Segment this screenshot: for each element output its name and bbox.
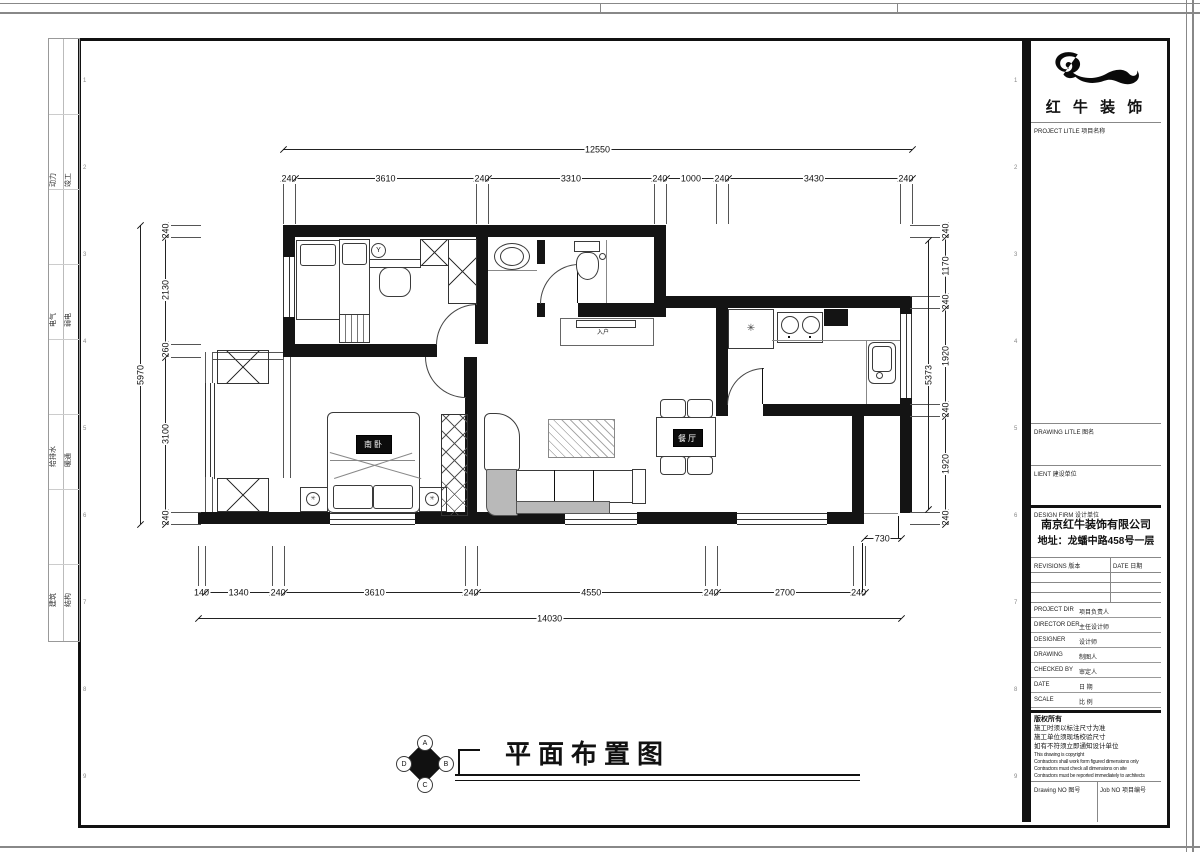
title-bracket-h: [458, 749, 480, 751]
dim-segment: 3310: [488, 178, 654, 179]
copyright-line-cn: 如有不符须立即通知设计单位: [1034, 742, 1119, 751]
bay-window: [205, 383, 215, 479]
drawing-title-label: DRAWING LITLE 图名: [1034, 427, 1094, 436]
north-wardrobe-tall: [448, 239, 477, 304]
grid-ref-number: 9: [1014, 774, 1017, 780]
step-edge-line: [864, 513, 898, 514]
discipline-strip-divider: [63, 39, 64, 641]
desk-chair: [379, 267, 411, 297]
stove-burner-left: [781, 316, 799, 334]
job-no-label: Job NO 项目编号: [1100, 785, 1146, 794]
staff-row: CHECKED BY审定人: [1031, 662, 1161, 678]
title-block: 红 牛 装 饰 PROJECT LITLE 项目名称 DRAWING LITLE…: [1031, 38, 1161, 822]
copyright-english: This drawing is copyrightContractors sha…: [1034, 752, 1145, 780]
drawing-sheet: { "sheet": { "side_strip": { "pairs": [[…: [0, 0, 1200, 852]
south-bedroom-label: 南卧: [356, 435, 392, 454]
dim-top-segments: 2403610240331024010002403430240: [283, 178, 912, 179]
staff-row: PROJECT DIR项目负责人: [1031, 602, 1161, 618]
grid-ref-number: 4: [1014, 339, 1017, 345]
revisions-label: REVISIONS 版本: [1034, 561, 1080, 570]
grid-ref-number: 6: [83, 513, 86, 519]
wall-bathroom-right: [654, 237, 666, 308]
washbasin-inner: [500, 247, 524, 266]
grid-ref-number: 1: [1014, 78, 1017, 84]
dim-step-730: 730: [864, 538, 901, 539]
kitchen-flue: [824, 309, 848, 326]
wall-bottom-a: [198, 512, 330, 524]
lamp-glyph-right: ✳: [429, 496, 434, 502]
kitchen-door-leaf: [762, 368, 763, 404]
grid-ref-number: 4: [83, 339, 86, 345]
copyright-line-en: Contractors must be reported immediately…: [1034, 773, 1145, 780]
sofa-seats: [516, 470, 634, 503]
title-underline-1: [455, 774, 860, 776]
wall-kitchen-top: [666, 296, 912, 308]
single-bed-pillow: [300, 244, 336, 266]
grid-ref-number: 3: [83, 252, 86, 258]
tb-jobno-vline: [1097, 781, 1098, 822]
wall-mid-horizontal: [283, 344, 437, 357]
lamp-glyph-left: ✳: [310, 496, 315, 502]
compass-letter-c: C: [422, 782, 427, 789]
sheet-edge-right-2: [1192, 0, 1194, 852]
compass-letter-d: D: [401, 761, 406, 768]
revisions-date-label: DATE 日期: [1113, 561, 1142, 570]
discipline-strip-cell-line: [49, 489, 79, 490]
shower-partition: [606, 240, 607, 303]
south-bedroom-door-leaf: [464, 357, 465, 397]
dining-room-label: 餐厅: [673, 429, 703, 447]
stool-icon: Y: [371, 243, 386, 258]
sheet-edge-bottom: [0, 846, 1200, 848]
kitchen-window: [900, 314, 912, 398]
tb-line-2: [1031, 423, 1161, 424]
fridge: ✳: [728, 309, 774, 349]
dining-room-label-text: 餐厅: [678, 433, 698, 444]
dim-segment: 5373: [928, 240, 929, 509]
wall-bathroom-bottom-b: [578, 303, 666, 317]
tb-rev-vline: [1110, 557, 1111, 602]
grid-ref-number: 9: [83, 774, 86, 780]
grid-ref-number: 8: [83, 687, 86, 693]
sofa-seat-divider-2: [593, 470, 594, 501]
sheet-cut-mark-2: [897, 3, 898, 14]
dining-chair-2: [687, 399, 713, 418]
dining-chair-1: [660, 399, 686, 418]
stove-knob-1: [788, 336, 790, 338]
wall-kitchen-bottom-b: [763, 404, 912, 416]
logo-text: 红 牛 装 饰: [1031, 100, 1161, 115]
title-block-divider-bar: [1022, 38, 1031, 822]
discipline-strip-cell-line: [49, 414, 79, 415]
counter-edge-top: [772, 340, 900, 341]
toilet-tank: [574, 241, 600, 252]
dim-bottom-segments: 1401340240361024045502402700240: [198, 592, 865, 593]
north-bedroom-door-leaf: [475, 304, 476, 344]
tb-line-9: [1031, 781, 1161, 782]
sofa-armrest-right: [632, 469, 646, 504]
staff-row: DESIGNER设计师: [1031, 632, 1161, 648]
drawing-no-label: Drawing NO 图号: [1034, 785, 1080, 794]
south-bedroom-window: [330, 513, 415, 525]
bay-left-upper: [205, 352, 213, 383]
wall-top: [283, 225, 666, 237]
living-room-window: [565, 513, 637, 525]
dim-step-leader-1: [862, 543, 863, 592]
dim-left-segments: 24021302603100240: [165, 225, 166, 524]
title-bracket-v: [458, 749, 460, 775]
sofa-seat-divider-1: [554, 470, 555, 501]
tb-line-5: [1031, 572, 1161, 573]
compass-point-c: C: [417, 777, 433, 793]
stove-burner-right: [802, 316, 820, 334]
tb-line-7: [1031, 592, 1161, 593]
dim-segment: 2130: [165, 237, 166, 344]
grid-ref-number: 7: [1014, 600, 1017, 606]
compass: A B C D: [396, 735, 452, 791]
wall-bottom-d: [827, 512, 864, 524]
north-wardrobe-small: [420, 239, 449, 266]
hongniu-logo-icon: [1049, 46, 1145, 98]
grid-ref-number: 5: [1014, 426, 1017, 432]
discipline-strip: 动力竣工电气弱电给排水暖通建筑结构: [48, 38, 80, 642]
staff-row: DATE日 期: [1031, 677, 1161, 693]
wall-niche-divider: [476, 237, 488, 344]
tb-line-6: [1031, 582, 1161, 583]
title-underline-2: [455, 780, 860, 781]
dim-segment: 1920: [945, 308, 946, 404]
staff-rows: PROJECT DIR项目负责人DIRECTOR DER主任设计师DESIGNE…: [1031, 602, 1161, 707]
project-title-label: PROJECT LITLE 项目名称: [1034, 126, 1105, 135]
sofa-back-left: [484, 413, 520, 471]
grid-ref-number: 2: [1014, 165, 1017, 171]
drawing-frame: [78, 38, 1170, 828]
grid-ref-number: 6: [1014, 513, 1017, 519]
client-label: LIENT 建设单位: [1034, 469, 1077, 478]
fridge-glyph: ✳: [747, 324, 755, 334]
staff-row: SCALE比 例: [1031, 692, 1161, 708]
dim-top-overall: 12550: [283, 149, 912, 150]
tatami-pillow: [342, 243, 367, 265]
dining-window: [737, 513, 827, 525]
grid-ref-number: 8: [1014, 687, 1017, 693]
grid-ref-number: 1: [83, 78, 86, 84]
dim-segment: 3430: [728, 178, 900, 179]
discipline-strip-cell-line: [49, 114, 79, 115]
tv: [576, 320, 636, 328]
bay-pier-top: [217, 350, 269, 384]
dim-left-overall: 5970: [140, 225, 141, 524]
dim-segment: 2700: [717, 592, 852, 593]
toilet-flush-button: [599, 253, 606, 260]
sofa-chaise: [486, 469, 518, 516]
sink-faucet: [876, 372, 883, 379]
discipline-label: 暖通: [63, 453, 73, 467]
wall-bathroom-bottom-a: [537, 303, 545, 317]
design-firm-label: DESIGN FIRM 设计单位: [1034, 510, 1099, 519]
company-name: 南京红牛装饰有限公司: [1031, 520, 1161, 531]
wall-kitchen-bottom-a: [716, 404, 727, 416]
south-wardrobe: [441, 414, 468, 516]
dim-segment: 3610: [295, 178, 476, 179]
nightstand-lamp-right: ✳: [425, 492, 439, 506]
bay-left-lower: [205, 477, 213, 512]
wall-bottom-c: [637, 512, 737, 524]
discipline-label: 给排水: [48, 446, 58, 467]
nightstand-lamp-left: ✳: [306, 492, 320, 506]
south-bedroom-sill-line: [283, 357, 291, 478]
entry-label: 入户: [597, 330, 609, 336]
discipline-strip-cell-line: [49, 564, 79, 565]
dim-right-segments: 240117024019202401920240: [945, 225, 946, 524]
copyright-line-cn: 施工时须以标注尺寸为准: [1034, 724, 1119, 733]
compass-point-a: A: [417, 735, 433, 751]
discipline-strip-cell-line: [49, 264, 79, 265]
vanity-counter-edge: [488, 270, 537, 271]
discipline-label: 动力: [48, 173, 58, 187]
discipline-strip-cell-line: [49, 189, 79, 190]
compass-letter-b: B: [444, 761, 449, 768]
dim-segment: 730: [864, 538, 901, 539]
wall-left-upper-b: [283, 317, 295, 344]
compass-point-b: B: [438, 756, 454, 772]
discipline-label: 建筑: [48, 593, 58, 607]
bed-pillow-left: [333, 485, 373, 509]
tatami-drawers: [339, 314, 370, 343]
dim-segment: 4550: [477, 592, 705, 593]
copyright-line-cn: 版权所有: [1034, 715, 1119, 724]
bed-mattress-line: [330, 460, 415, 461]
wall-bathroom-niche-stub: [537, 240, 545, 264]
dim-segment: 12550: [283, 149, 912, 150]
copyright-chinese: 版权所有施工时须以标注尺寸为准施工单位须现场校验尺寸如有不符须立即通知设计单位: [1034, 715, 1119, 751]
compass-letter-a: A: [423, 740, 428, 747]
grid-ref-number: 2: [83, 165, 86, 171]
copyright-line-cn: 施工单位须现场校验尺寸: [1034, 733, 1119, 742]
kitchen-sink-basin: [872, 346, 892, 372]
dining-chair-3: [660, 456, 686, 475]
grid-ref-number: 3: [1014, 252, 1017, 258]
tb-line-1: [1031, 122, 1161, 123]
sheet-cut-mark-1: [600, 3, 601, 14]
south-bedroom-label-text: 南卧: [364, 439, 384, 450]
discipline-label: 竣工: [63, 173, 73, 187]
dim-segment: 14030: [198, 618, 901, 619]
staff-row: DRAWING制图人: [1031, 647, 1161, 663]
bed-pillow-right: [373, 485, 413, 509]
coffee-table-rug: [548, 419, 615, 458]
sheet-edge-right-1: [1186, 0, 1187, 852]
discipline-strip-cell-line: [49, 339, 79, 340]
dim-segment: 5970: [140, 225, 141, 524]
discipline-label: 弱电: [63, 313, 73, 327]
dim-step-leader-2: [898, 516, 899, 538]
dim-segment: 1170: [945, 237, 946, 296]
north-bedroom-window: [283, 257, 295, 317]
dim-segment: 1920: [945, 416, 946, 512]
copyright-line-en: This drawing is copyright: [1034, 752, 1145, 759]
stool-glyph: Y: [376, 247, 381, 254]
tb-thick-line-2: [1031, 710, 1161, 713]
dim-segment: 1340: [205, 592, 272, 593]
bay-pier-bottom: [217, 478, 269, 512]
stove-knob-2: [809, 336, 811, 338]
tb-line-4: [1031, 557, 1161, 558]
compass-point-d: D: [396, 756, 412, 772]
dining-chair-4: [687, 456, 713, 475]
wall-kitchen-left: [716, 296, 728, 416]
dim-bottom-overall: 14030: [198, 618, 901, 619]
dim-segment: 1000: [666, 178, 716, 179]
tb-line-3: [1031, 465, 1161, 466]
dim-segment: 3100: [165, 357, 166, 512]
toilet-bowl: [576, 252, 599, 280]
grid-ref-number: 7: [83, 600, 86, 606]
dim-segment: 3610: [284, 592, 465, 593]
discipline-label: 结构: [63, 593, 73, 607]
company-address: 地址：龙蟠中路458号一层: [1031, 537, 1161, 547]
dim-right-inner: 5373: [928, 240, 929, 509]
sofa-front-strip: [516, 501, 610, 514]
counter-edge-right: [866, 341, 867, 404]
staff-row: DIRECTOR DER主任设计师: [1031, 617, 1161, 633]
wall-left-upper-a: [283, 237, 295, 257]
tb-thick-line-1: [1031, 505, 1161, 508]
wall-dining-right: [852, 416, 864, 513]
copyright-line-en: Contractors shall work form figured dime…: [1034, 759, 1145, 766]
copyright-line-en: Contractors must check all dimensions on…: [1034, 766, 1145, 773]
plan-title: 平面布置图: [505, 741, 670, 767]
discipline-label: 电气: [48, 313, 58, 327]
grid-ref-number: 5: [83, 426, 86, 432]
